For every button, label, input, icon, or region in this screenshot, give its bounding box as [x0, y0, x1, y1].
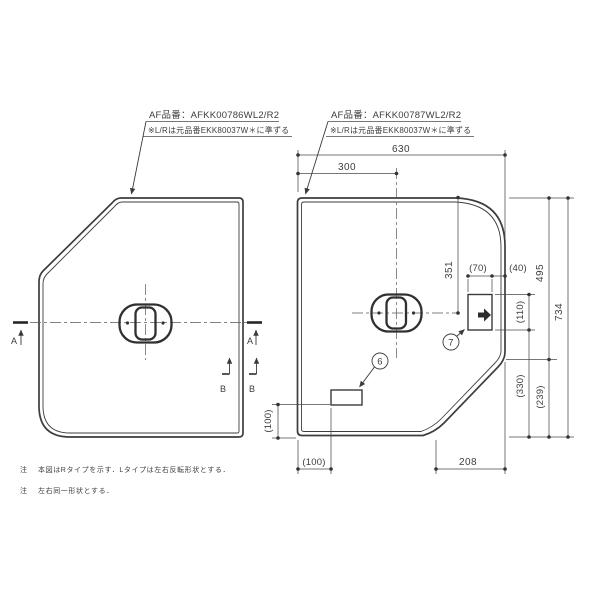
left-handle-dot: [126, 321, 129, 324]
dim-330: (330): [515, 374, 526, 397]
right-handle-dot: [377, 311, 380, 314]
right-part-label: AF品番：AFKK00787WL2/R2 ※L/Rは元品番EKK80037W＊に…: [306, 109, 475, 194]
dim-239: (239): [535, 385, 546, 408]
dim-208: 208: [459, 457, 477, 468]
callout-7-number: 7: [448, 338, 453, 349]
dim-40: (40): [509, 263, 527, 274]
section-label-a-right: A: [247, 336, 253, 346]
left-panel: A A B B AF品番：AFKK00786WL2/R2 ※L/Rは元品番EKK…: [11, 109, 292, 437]
section-marker-a-right: A: [247, 323, 262, 347]
dim-110: (110): [515, 301, 526, 323]
dim-351: 351: [444, 261, 455, 279]
grip-arrow-icon: [478, 309, 491, 322]
right-part-number: AF品番：AFKK00787WL2/R2: [331, 109, 461, 121]
drawing-canvas: A A B B AF品番：AFKK00786WL2/R2 ※L/Rは元品番EKK…: [0, 0, 600, 600]
dim-630: 630: [392, 144, 410, 155]
feature-rect-6: [331, 390, 362, 405]
section-marker-a-left: A: [11, 323, 28, 347]
note-2-text: 左右同一形状とする．: [38, 486, 114, 495]
dim-734: 734: [554, 303, 565, 321]
technical-drawing-page: A A B B AF品番：AFKK00786WL2/R2 ※L/Rは元品番EKK…: [0, 0, 600, 600]
right-part-note: ※L/Rは元品番EKK80037W＊に準ずる: [330, 125, 471, 135]
note-2-prefix: 注: [20, 486, 28, 495]
section-label-b-inner: B: [220, 384, 226, 394]
callout-6-number: 6: [377, 357, 382, 368]
left-part-note: ※L/Rは元品番EKK80037W＊に準ずる: [148, 125, 289, 135]
section-label-a-left: A: [11, 336, 17, 346]
section-label-b-outer: B: [249, 384, 255, 394]
left-part-label: AF品番：AFKK00786WL2/R2 ※L/Rは元品番EKK80037W＊に…: [132, 109, 293, 194]
left-panel-outline-inner: [43, 202, 239, 433]
dim-100-bottom: (100): [302, 457, 325, 468]
right-label-leader: [306, 122, 329, 195]
dim-300: 300: [338, 162, 356, 173]
dim-70: (70): [469, 263, 487, 274]
callout-6: 6: [360, 353, 389, 387]
drawing-notes: 注 本図はRタイプを示す．Lタイプは左右反転形状とする． 注 左右同一形状とする…: [20, 465, 230, 495]
right-handle-dot: [412, 311, 415, 314]
dim-100-left: (100): [263, 409, 274, 432]
left-panel-outline-outer: [39, 198, 243, 437]
section-marker-b-outer: B: [249, 358, 257, 394]
callout-7: 7: [443, 330, 465, 351]
right-panel: 6 7 AF品番：AFKK00787WL2/R2 ※L/Rは元品番EKK8003…: [263, 109, 574, 474]
dim-495: 495: [535, 264, 546, 282]
dimensions: 630 300 351 (70) (40) 495 734: [263, 144, 574, 474]
left-part-number: AF品番：AFKK00786WL2/R2: [149, 109, 279, 121]
right-panel-outline-outer: [298, 198, 506, 436]
left-handle-dot: [161, 321, 164, 324]
note-1-prefix: 注: [20, 465, 28, 474]
feature-rect-7: [468, 295, 492, 331]
section-marker-b-inner: B: [220, 358, 230, 394]
left-label-leader: [132, 122, 147, 195]
note-1-text: 本図はRタイプを示す．Lタイプは左右反転形状とする．: [38, 465, 230, 474]
